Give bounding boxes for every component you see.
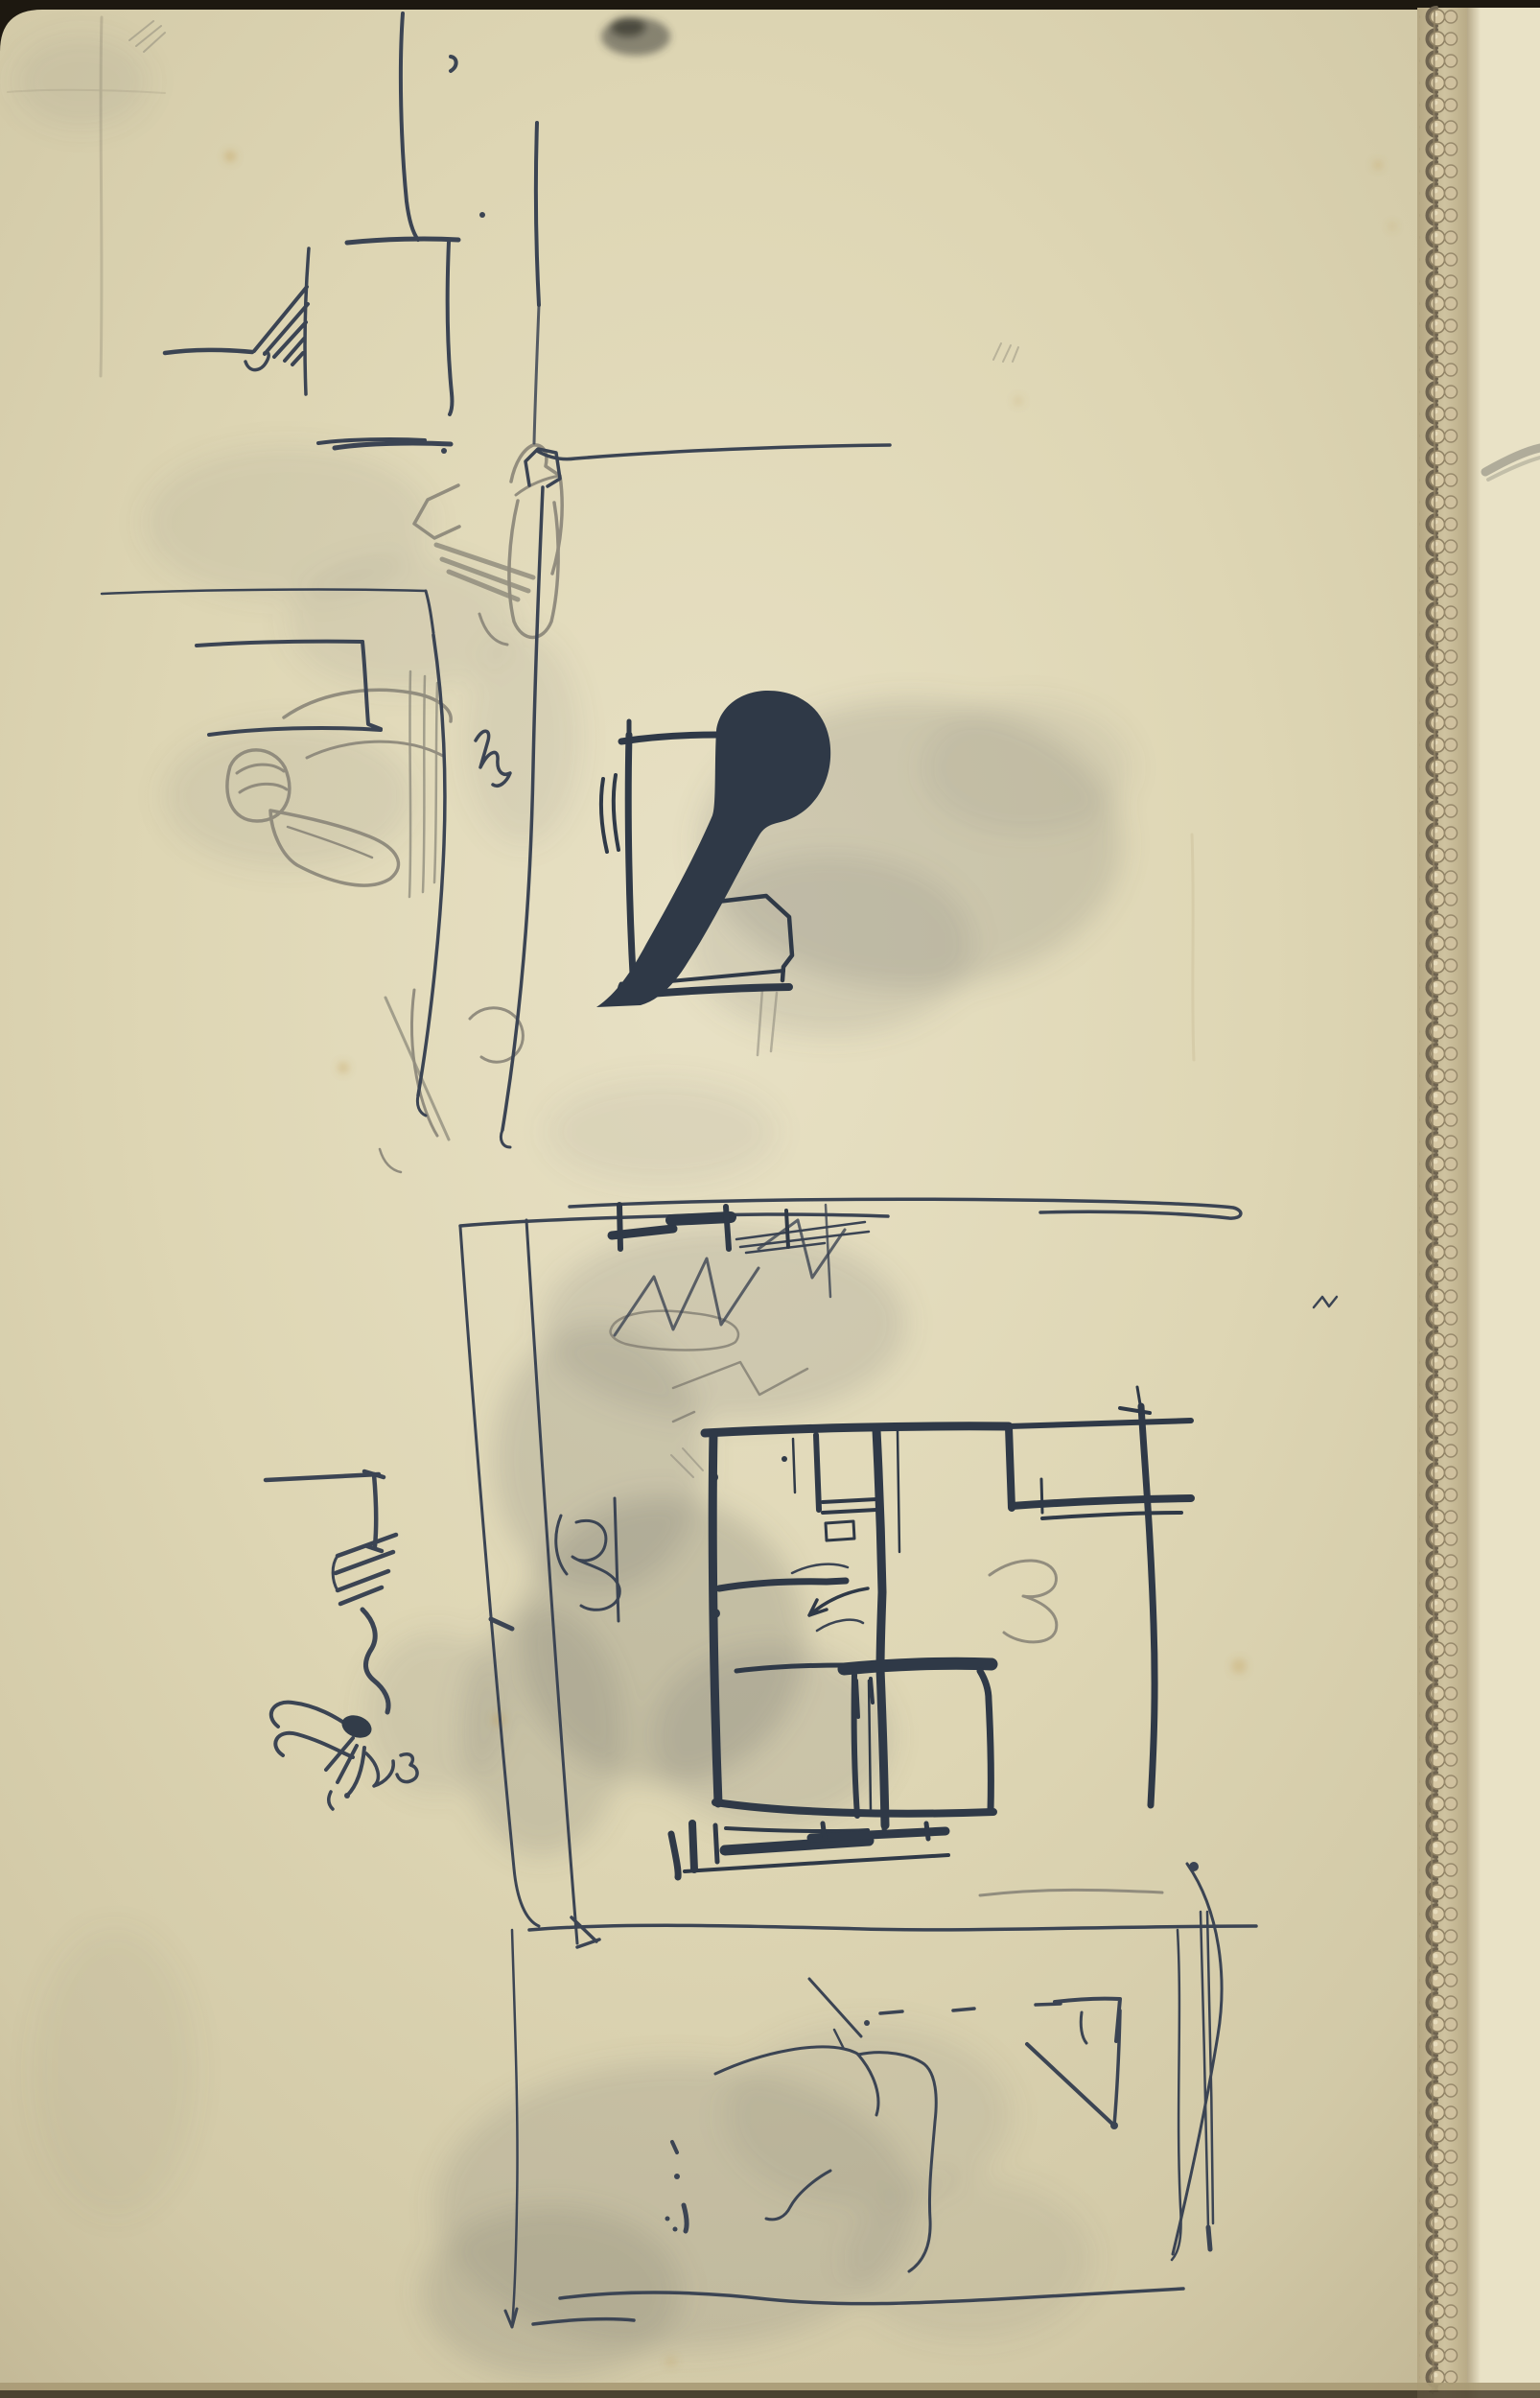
sketch-canvas (0, 0, 1540, 2398)
page-seam-shadow (1467, 8, 1481, 2398)
bottom-page-edge (0, 2383, 1540, 2390)
binding-perforation-chain (1419, 6, 1463, 2392)
binding-strip (1417, 6, 1467, 2398)
sketchbook-page-scan (0, 0, 1540, 2398)
bottom-scan-gap (0, 2390, 1540, 2398)
ink-stain-top (601, 17, 670, 56)
